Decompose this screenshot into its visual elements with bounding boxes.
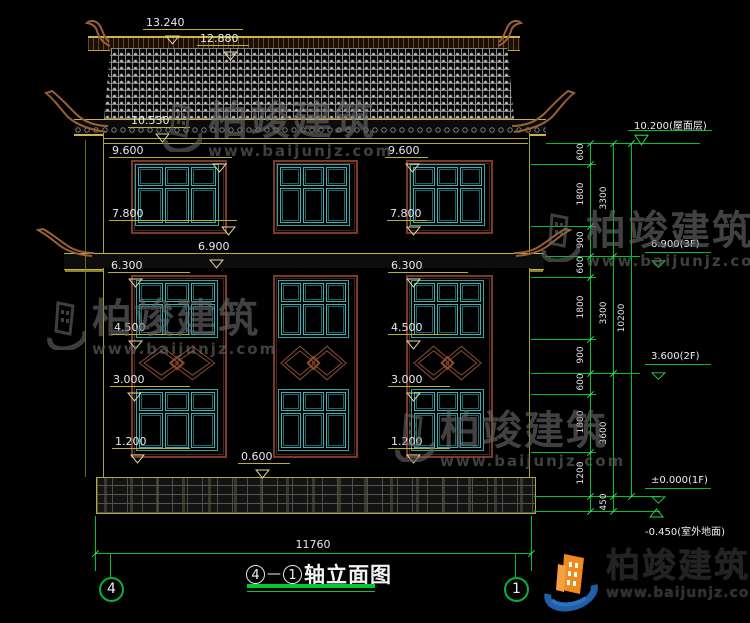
watermarks-layer: 柏竣建筑 www.baijunjz.com 柏竣建筑 www.baijunjz.… xyxy=(0,0,750,623)
watermark-4: 柏竣建筑 www.baijunjz.com xyxy=(388,410,625,470)
watermark-text: 柏竣建筑 xyxy=(440,410,625,452)
watermark-text: 柏竣建筑 xyxy=(208,100,393,142)
brand-logo-icon xyxy=(540,548,598,614)
watermark-1: 柏竣建筑 www.baijunjz.com xyxy=(156,100,393,160)
watermark-url: www.baijunjz.com xyxy=(208,142,393,160)
watermark-icon xyxy=(156,100,202,152)
watermark-icon xyxy=(534,210,580,262)
watermark-icon xyxy=(388,410,434,462)
watermark-text: 柏竣建筑 xyxy=(92,298,277,340)
watermark-text: 柏竣建筑 xyxy=(586,210,750,252)
brand-logo-url: www.baijunjz.com xyxy=(606,585,750,601)
brand-logo-text: 柏竣建筑 xyxy=(606,548,750,585)
elevation-drawing-canvas: 13.24012.88010.5309.6009.6007.8007.8006.… xyxy=(0,0,750,623)
watermark-2: 柏竣建筑 www.baijunjz.com xyxy=(40,298,277,358)
watermark-3: 柏竣建筑 www.baijunjz.com xyxy=(534,210,750,270)
watermark-url: www.baijunjz.com xyxy=(586,252,750,270)
watermark-url: www.baijunjz.com xyxy=(92,340,277,358)
brand-logo: 柏竣建筑 www.baijunjz.com xyxy=(540,548,750,614)
watermark-url: www.baijunjz.com xyxy=(440,452,625,470)
watermark-icon xyxy=(40,298,86,350)
